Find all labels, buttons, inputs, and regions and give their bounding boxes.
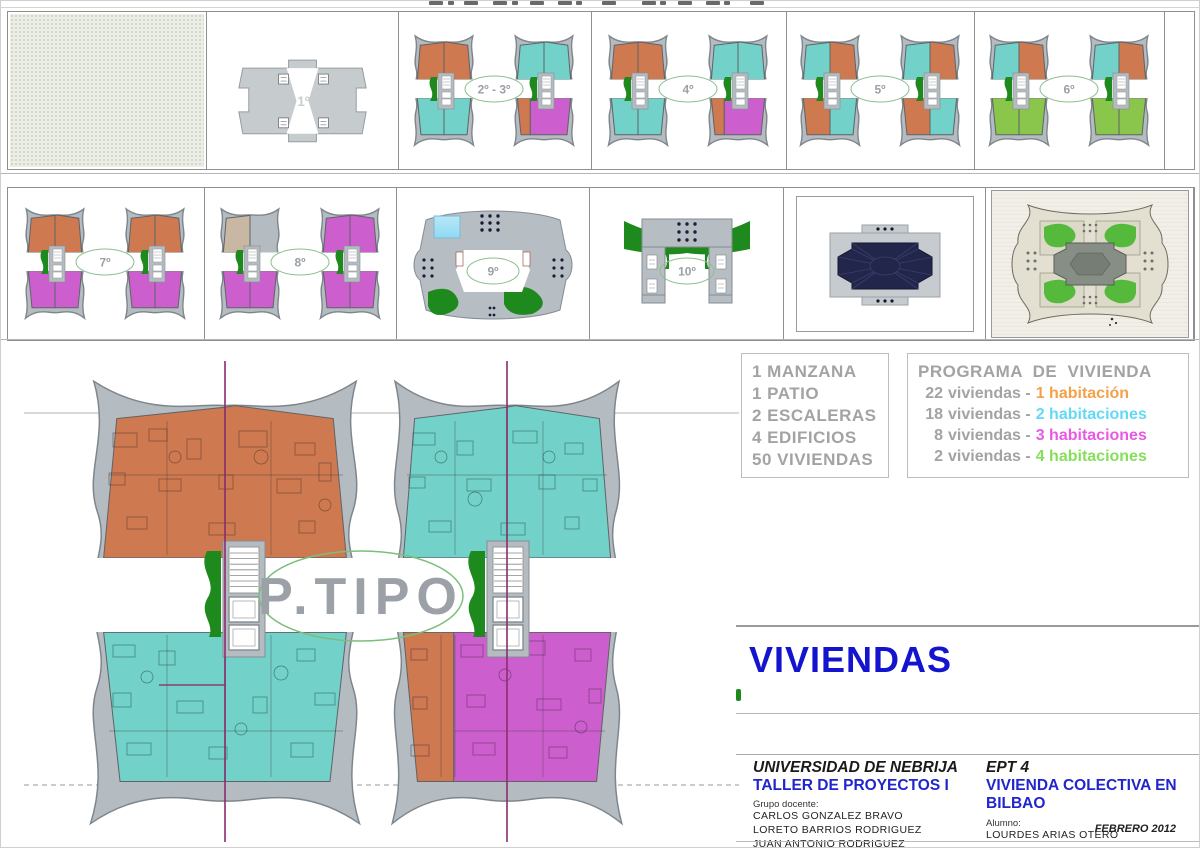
floor-panel-planta-9: 9º: [397, 188, 590, 340]
presentation-board: 1º 2º - 3º 4º: [0, 0, 1200, 848]
titleblock-bottom-line: [736, 841, 1200, 842]
group-label: Grupo docente:: [753, 799, 973, 810]
program-type: 2 habitaciones: [1036, 404, 1147, 425]
cropped-letter-mark: [429, 1, 443, 5]
project-title: VIVIENDA COLECTIVA EN BILBAO: [986, 777, 1186, 814]
svg-text:5º: 5º: [874, 82, 886, 96]
cropped-letter-mark: [750, 1, 764, 5]
floor-panel-planta-4: 4º: [592, 12, 787, 169]
teacher-name: LORETO BARRIOS RODRIGUEZ: [753, 824, 973, 838]
program-middle: viviendas -: [948, 404, 1031, 425]
cropped-letter-mark: [678, 1, 692, 5]
cropped-letter-mark: [464, 1, 478, 5]
program-row: 8 viviendas - 3 habitaciones: [918, 425, 1178, 446]
cropped-letter-mark: [724, 1, 730, 5]
cropped-letter-mark: [558, 1, 572, 5]
board-date: FEBRERO 2012: [1041, 823, 1176, 835]
project-summary-box: 1 MANZANA1 PATIO2 ESCALERAS4 EDIFICIOS50…: [741, 353, 889, 478]
main-floor-plan-p-tipo: P.TIPO: [9, 345, 744, 848]
university-name: UNIVERSIDAD DE NEBRIJA: [753, 759, 973, 777]
cropped-letter-mark: [512, 1, 518, 5]
course-name: TALLER DE PROYECTOS I: [753, 777, 973, 796]
floor-panel-conjunto: [986, 188, 1194, 340]
floor-plan-planta-6: 6º: [977, 20, 1163, 162]
program-title: PROGRAMA DE VIVIENDA: [918, 361, 1178, 383]
program-count: 2: [918, 446, 943, 467]
program-type: 3 habitaciones: [1036, 425, 1147, 446]
cropped-letter-mark: [530, 1, 544, 5]
course-code: EPT 4: [986, 759, 1186, 777]
teacher-name: JUAN ANTONIO RODRIGUEZ FERNANDEZ: [753, 838, 973, 848]
svg-text:4º: 4º: [682, 82, 694, 96]
floor-plan-planta-2-3: 2º - 3º: [402, 20, 588, 162]
program-middle: viviendas -: [948, 383, 1031, 404]
program-count: 22: [918, 383, 943, 404]
green-tick-mark: [736, 689, 741, 701]
program-type: 1 habitación: [1036, 383, 1129, 404]
housing-program-box: PROGRAMA DE VIVIENDA 22 viviendas - 1 ha…: [907, 353, 1189, 478]
title-band-bottom-line: [736, 713, 1200, 714]
summary-line: 1 MANZANA: [752, 361, 878, 383]
section-title: VIVIENDAS: [749, 639, 952, 681]
cropped-board-title: [1, 1, 1200, 6]
frame-line-top: [1, 7, 1200, 8]
row-separator-line: [1, 173, 1200, 174]
cropped-letter-mark: [493, 1, 507, 5]
site-inner-panel: [991, 190, 1189, 338]
program-count: 8: [918, 425, 943, 446]
summary-line: 4 EDIFICIOS: [752, 427, 878, 449]
teacher-name: CARLOS GONZALEZ BRAVO: [753, 810, 973, 824]
svg-text:1º: 1º: [297, 92, 310, 108]
roof-inner-panel: [796, 196, 974, 332]
program-row: 18 viviendas - 2 habitaciones: [918, 404, 1178, 425]
floor-panel-planta-7: 7º: [8, 188, 205, 340]
summary-line: 50 VIVIENDAS: [752, 449, 878, 471]
floor-panel-cubierta: [784, 188, 986, 340]
rows-bottom-line: [1, 339, 1200, 340]
floor-plan-conjunto: [994, 191, 1186, 337]
cropped-letter-mark: [660, 1, 666, 5]
summary-line: 1 PATIO: [752, 383, 878, 405]
program-middle: viviendas -: [948, 446, 1031, 467]
summary-line: 2 ESCALERAS: [752, 405, 878, 427]
program-row: 2 viviendas - 4 habitaciones: [918, 446, 1178, 467]
floor-plan-planta-8: 8º: [208, 193, 394, 335]
floor-plan-planta-4: 4º: [596, 20, 782, 162]
cropped-letter-mark: [576, 1, 582, 5]
floor-plan-planta-10: 10º: [602, 195, 772, 333]
site-texture: [10, 14, 204, 167]
svg-text:6º: 6º: [1063, 82, 1075, 96]
svg-text:P.TIPO: P.TIPO: [258, 568, 464, 626]
floor-panel-planta-6: 6º: [975, 12, 1165, 169]
svg-text:9º: 9º: [487, 265, 499, 279]
program-middle: viviendas -: [948, 425, 1031, 446]
floor-panel-planta-1: 1º: [207, 12, 399, 169]
svg-text:10º: 10º: [678, 265, 696, 279]
floor-panel-planta-5: 5º: [787, 12, 975, 169]
svg-text:2º - 3º: 2º - 3º: [478, 82, 511, 96]
floor-plan-cubierta: [800, 199, 970, 329]
cropped-letter-mark: [448, 1, 454, 5]
floor-plans-row-2: 7º 8º 9º: [7, 187, 1195, 341]
floor-plan-planta-7: 7º: [13, 193, 199, 335]
program-count: 18: [918, 404, 943, 425]
floor-panel-planta-baja: [8, 12, 207, 169]
titleblock-left: UNIVERSIDAD DE NEBRIJA TALLER DE PROYECT…: [753, 759, 973, 848]
floor-plan-planta-5: 5º: [788, 20, 974, 162]
title-band-top-line: [736, 625, 1200, 627]
cropped-letter-mark: [602, 1, 616, 5]
floor-panel-planta-2-3: 2º - 3º: [399, 12, 592, 169]
floor-plan-planta-9: 9º: [398, 190, 588, 338]
floor-panel-planta-10: 10º: [590, 188, 784, 340]
program-row: 22 viviendas - 1 habitación: [918, 383, 1178, 404]
floor-plan-planta-1: 1º: [207, 16, 398, 166]
cropped-letter-mark: [642, 1, 656, 5]
svg-text:8º: 8º: [294, 256, 306, 270]
cropped-letter-mark: [706, 1, 720, 5]
svg-text:7º: 7º: [99, 256, 111, 270]
titleblock-top-line: [736, 754, 1200, 755]
floor-panel-planta-8: 8º: [205, 188, 397, 340]
floor-plans-row-1: 1º 2º - 3º 4º: [7, 11, 1195, 170]
program-type: 4 habitaciones: [1036, 446, 1147, 467]
